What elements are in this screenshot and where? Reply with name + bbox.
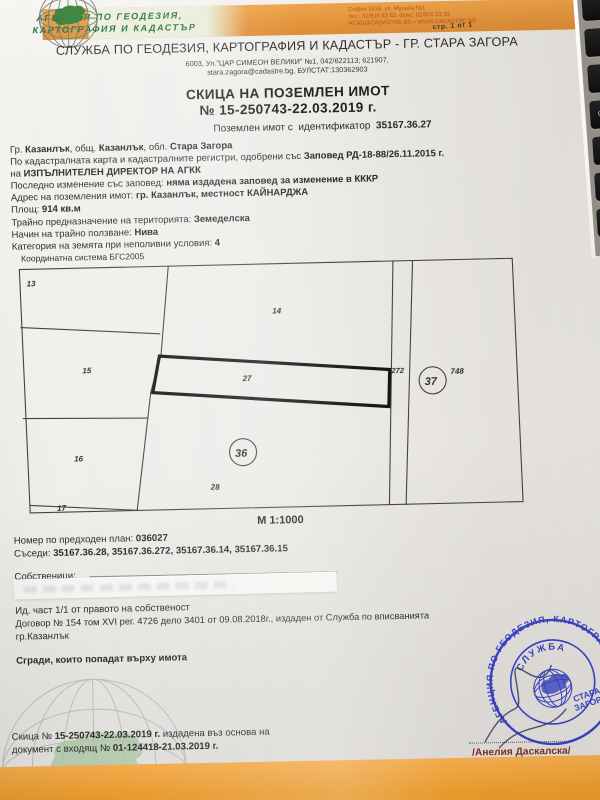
- subject-parcel-27-outline: [152, 351, 390, 411]
- keyboard-key-icon: [594, 171, 600, 201]
- region-number-36: 36: [235, 448, 248, 460]
- keyboard-key-icon: [584, 27, 600, 57]
- buildings-section-label: Сгради, които попадат върху имота: [16, 652, 187, 666]
- region-number-37: 37: [425, 376, 438, 388]
- deed-city-line: гр.Казанлък: [16, 631, 69, 643]
- keyboard-key-icon: d: [589, 99, 600, 129]
- property-details: Гр. Казанлък, общ. Казанлък, обл. Стара …: [10, 136, 446, 254]
- parcel-label-27: 27: [241, 374, 252, 383]
- ownership-share-line: Ид. част 1/1 от правото на собственост: [15, 602, 190, 617]
- photo-background: АГЕНЦИЯ ПО ГЕОДЕЗИЯ, КАРТОГРАФИЯ И КАДАС…: [0, 0, 600, 800]
- parcel-label-16: 16: [74, 454, 84, 463]
- parcel-label-17: 17: [57, 504, 67, 513]
- parcel-label-14: 14: [272, 306, 282, 315]
- office-stamp-icon: АГЕНЦИЯ ПО ГЕОДЕЗИЯ, КАРТОГРАФИЯ И КАДАС…: [464, 593, 600, 771]
- parcel-label-748: 748: [450, 367, 464, 376]
- parcel-label-15: 15: [82, 366, 92, 375]
- cadastral-map: 13 14 15 16 17 27 28 272 748 36 37: [18, 257, 537, 519]
- redacted-owner-name: [24, 581, 234, 593]
- parcel-label-13: 13: [27, 279, 37, 288]
- keyboard-key-icon: [587, 63, 600, 93]
- parcel-label-272: 272: [390, 366, 405, 375]
- parcel-identifier: Поземлен имот с идентификатор 35167.36.2…: [62, 116, 582, 137]
- keyboard-key-icon: [581, 0, 600, 21]
- keyboard-key-icon: [596, 207, 600, 237]
- keyboard-key-icon: [592, 135, 600, 165]
- paper-document: АГЕНЦИЯ ПО ГЕОДЕЗИЯ, КАРТОГРАФИЯ И КАДАС…: [0, 0, 600, 800]
- parcel-label-28: 28: [210, 483, 221, 492]
- previous-plan-line: Номер по предходен план: 036027: [14, 533, 168, 547]
- coordinate-system-label: Координатна система БГС2005: [21, 251, 144, 263]
